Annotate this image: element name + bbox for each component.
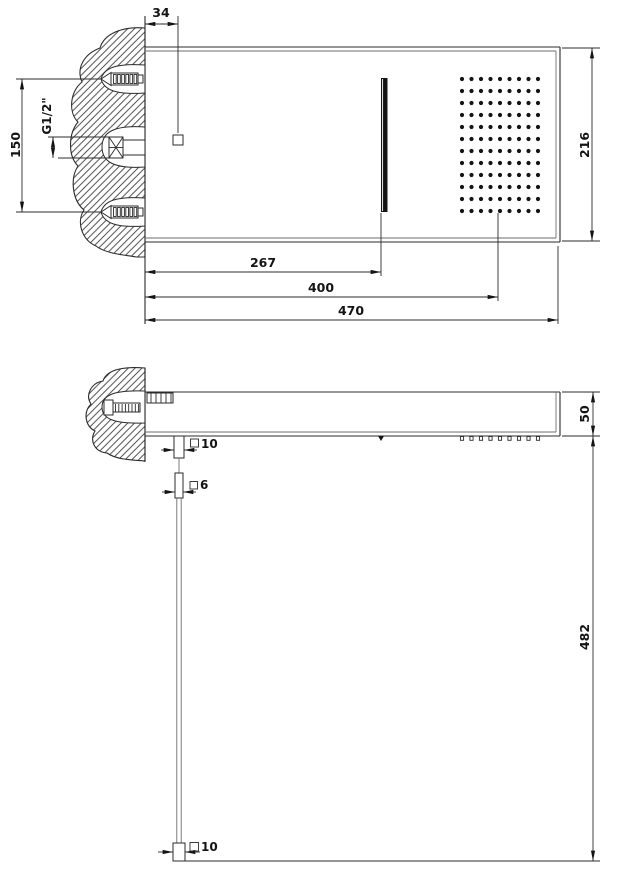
dim-jet-bottom-label: 10 xyxy=(201,840,218,854)
wall-section-top-view xyxy=(71,16,146,324)
dim-spray-distance-label: 400 xyxy=(308,280,334,295)
dim-slot-distance: 267 xyxy=(145,213,381,276)
waterfall-slot-edge-mark xyxy=(378,436,384,441)
jet-section-bottom xyxy=(173,843,185,861)
wall-anchor-bottom xyxy=(101,206,143,219)
dim-plate-length-label: 470 xyxy=(338,303,364,318)
shower-plate-side-view xyxy=(145,392,560,441)
jet-section-top xyxy=(174,436,184,458)
dim-drop-height: 482 xyxy=(577,436,593,861)
wall-section-side-view xyxy=(86,368,173,462)
dim-fixing-span-label: 150 xyxy=(8,132,23,158)
square-section-symbol xyxy=(191,439,199,447)
side-view: 10 6 10 50 482 xyxy=(86,368,600,861)
square-section-symbol xyxy=(190,843,199,852)
dim-slot-distance-label: 267 xyxy=(250,255,276,270)
dim-jet-top: 10 xyxy=(161,437,218,451)
dim-plate-depth-label: 216 xyxy=(577,132,592,158)
dim-jet-top-label: 10 xyxy=(201,437,218,451)
dim-wall-offset-label: 34 xyxy=(152,5,170,20)
dim-thread-label: G1/2" xyxy=(40,97,54,134)
dim-wall-offset: 34 xyxy=(145,5,178,133)
water-jet-side-view xyxy=(173,436,600,861)
jet-section-mid xyxy=(175,473,183,498)
dim-plate-depth: 216 xyxy=(562,48,600,241)
water-inlet-fitting xyxy=(109,137,145,158)
dim-plate-length: 470 xyxy=(145,246,558,324)
dim-jet-bottom: 10 xyxy=(158,840,218,854)
waterfall-slot xyxy=(381,78,388,212)
dim-plate-thickness-label: 50 xyxy=(577,405,592,423)
shower-plate-top-view xyxy=(145,47,560,242)
top-view: 34 150 G1/2" 216 267 400 xyxy=(8,5,600,324)
technical-drawing-shower-head: 34 150 G1/2" 216 267 400 xyxy=(0,0,621,874)
dim-plate-thickness: 50 xyxy=(562,392,600,436)
spray-nozzle-row xyxy=(460,437,539,441)
square-section-symbol xyxy=(190,482,198,490)
dim-drop-height-label: 482 xyxy=(577,624,592,650)
square-jet-orifice xyxy=(173,135,183,145)
dim-jet-mid: 6 xyxy=(162,478,208,492)
wall-anchor-top xyxy=(101,73,143,86)
dim-jet-mid-label: 6 xyxy=(200,478,208,492)
dim-spray-distance: 400 xyxy=(145,213,498,301)
spray-nozzle-grid xyxy=(460,77,540,213)
